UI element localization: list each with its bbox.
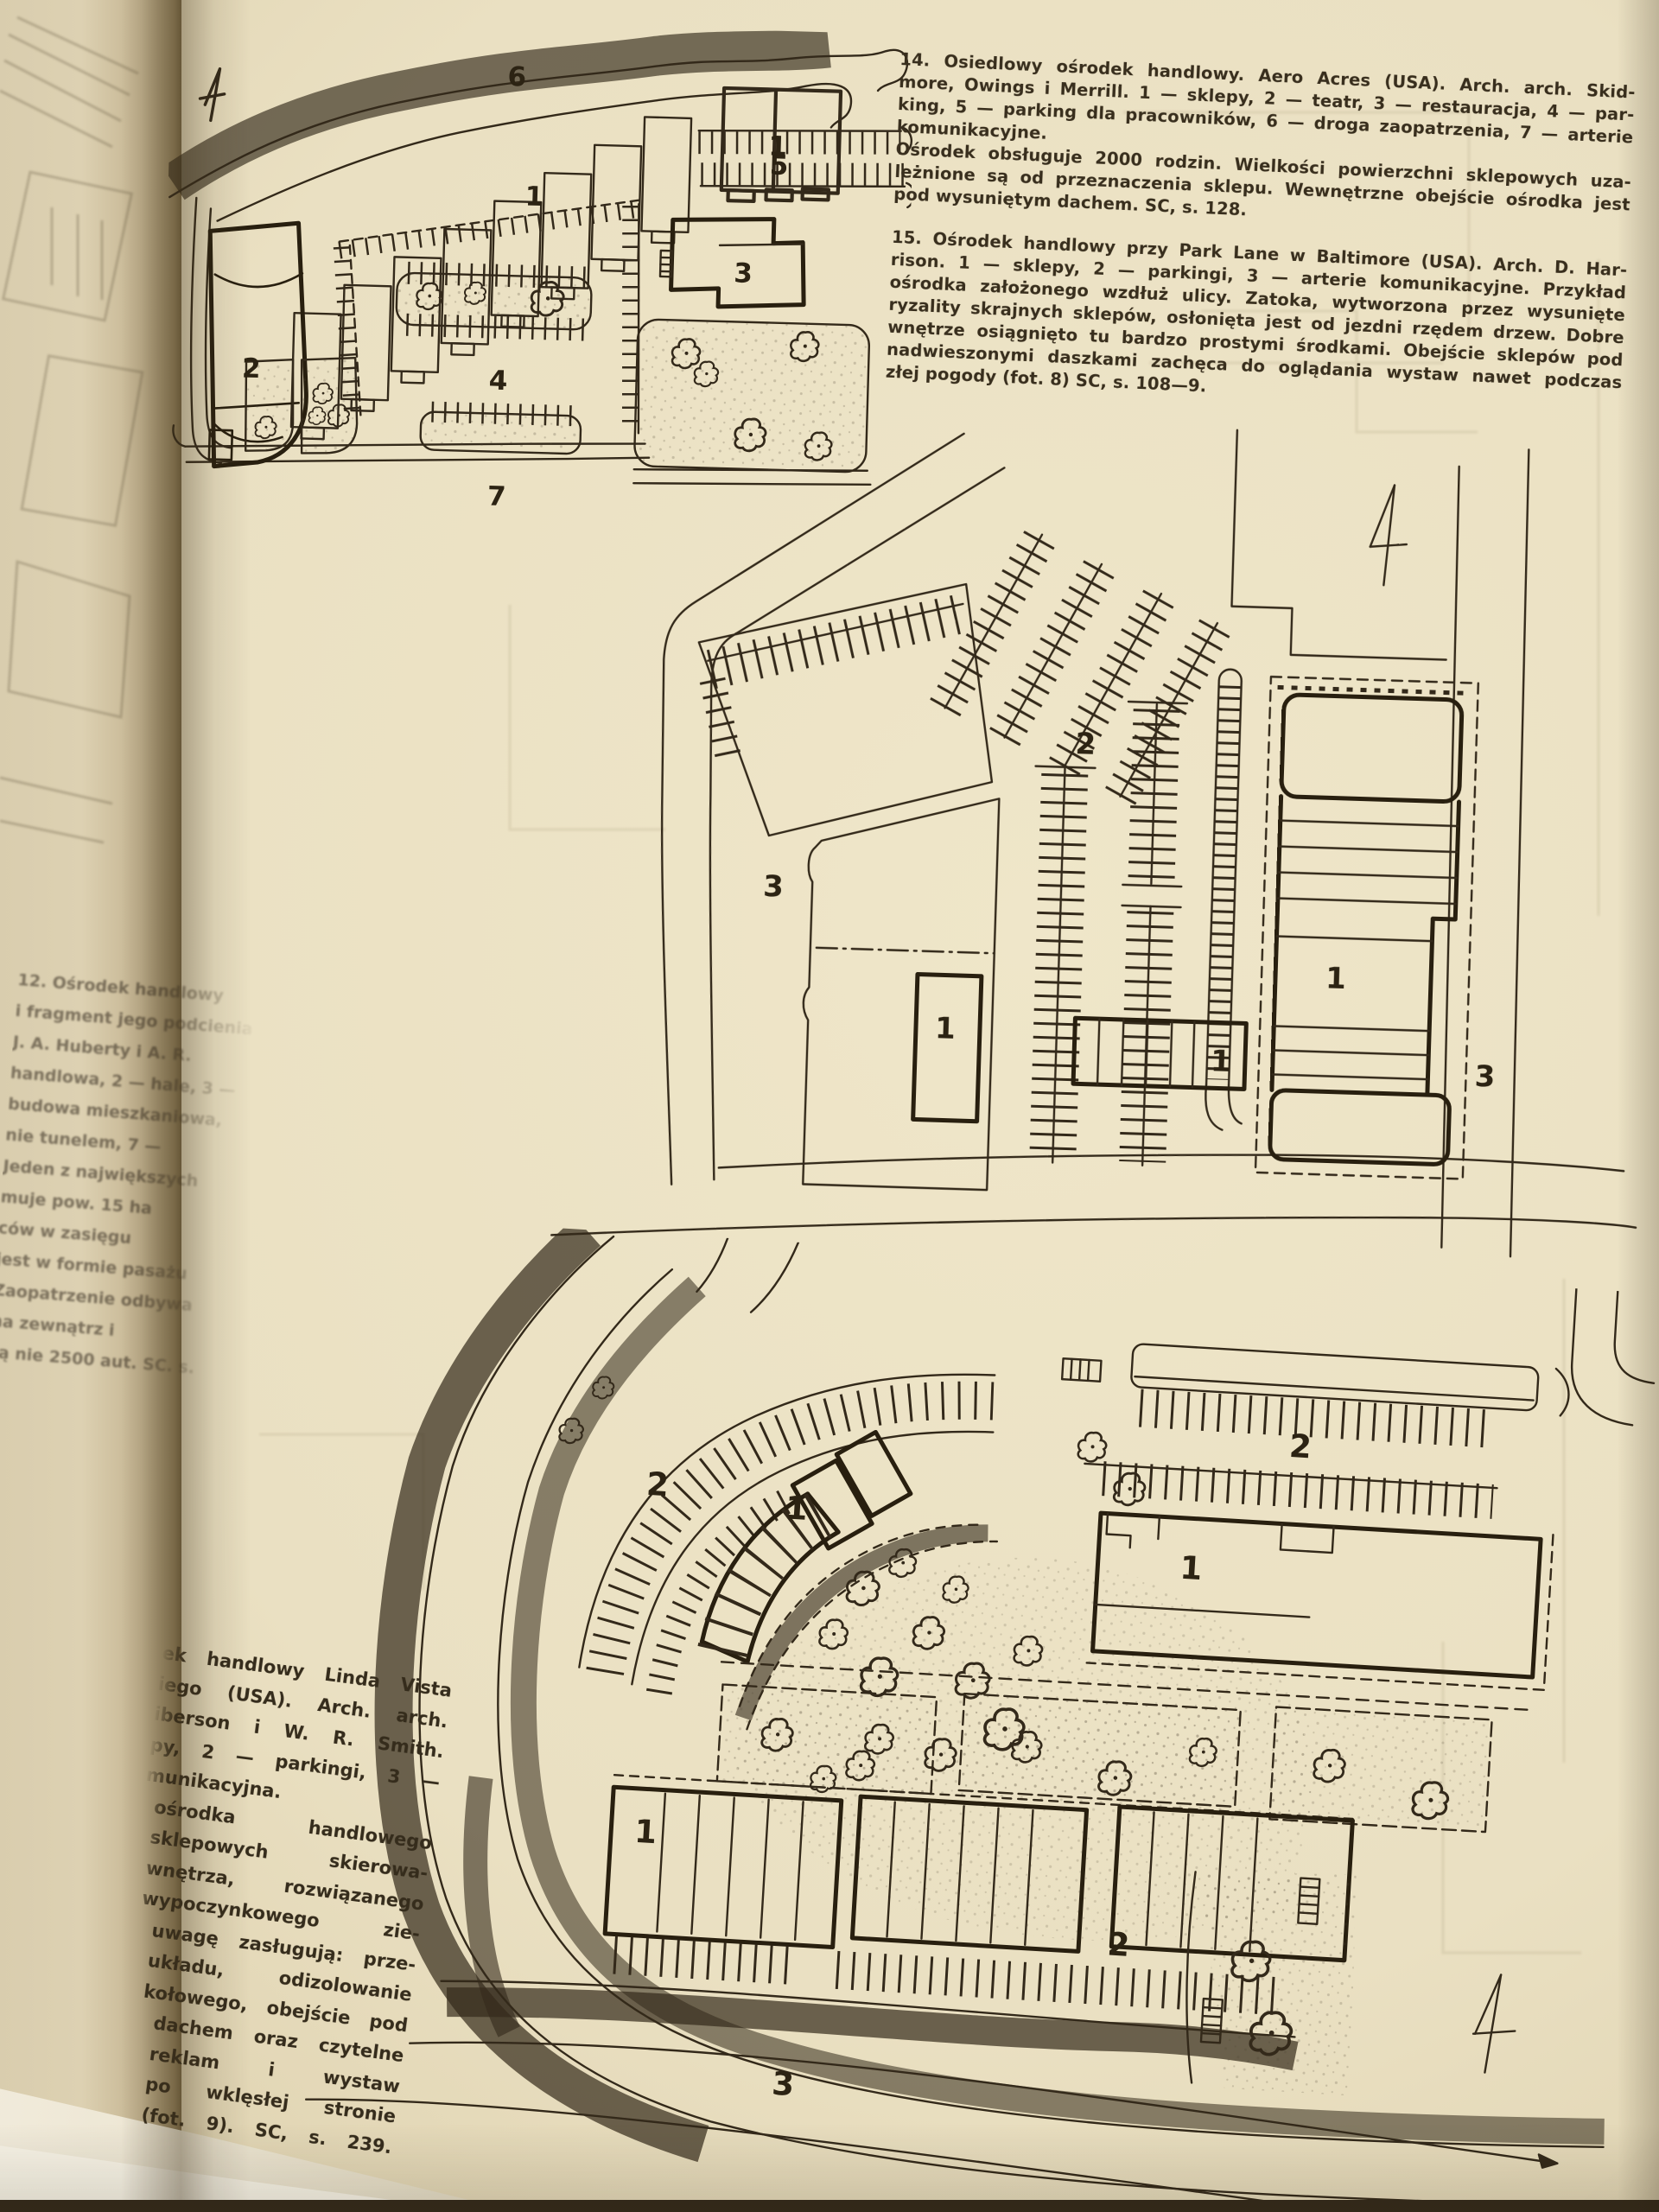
label-shops-arc: 1: [785, 1489, 809, 1527]
fig15-left-parcel: [798, 792, 999, 1190]
fig12-caption-partial: 12. Ośrodek handlowy i fragment jego pod…: [0, 964, 277, 1388]
fig13-right-wedge: [1180, 1865, 1363, 2095]
label-road-top: 6: [507, 61, 527, 93]
fig13-right-parking: [1084, 1341, 1570, 1506]
captions-column: 14. Osiedlowy ośrodek handlowy. Aero Acr…: [884, 48, 1636, 437]
label-parking-staff: 5: [769, 149, 789, 181]
label-road-bottom: 3: [771, 2065, 795, 2103]
label-building-right: 1: [1179, 1549, 1203, 1587]
fig13-plan: 2 1 1 2 1 2 3: [298, 1216, 1659, 2212]
label-road-left: 3: [763, 869, 785, 905]
fig15-roads: [551, 410, 1659, 1269]
crosswalk-mark: [1062, 1358, 1101, 1382]
label-road-bottom: 7: [486, 480, 506, 512]
terrain-stipple: [174, 29, 829, 201]
label-parking-bottom: 2: [1106, 1925, 1130, 1963]
fig15-caption: 15. Ośrodek handlowy przy Park Lane w Ba…: [885, 226, 1627, 416]
label-parking-arc: 2: [645, 1465, 670, 1503]
label-shop-striped: 1: [1210, 1044, 1231, 1079]
fig15-plan: 2 3 3 1 1 1: [495, 406, 1659, 1299]
book-photo: 6 1 1 2 3 4 5 7 14. Osiedlowy ośrodek ha…: [0, 0, 1659, 2212]
label-shops-main: 1: [1325, 961, 1347, 996]
label-theater: 2: [242, 353, 262, 385]
fig14-caption: 14. Osiedlowy ośrodek handlowy. Aero Acr…: [893, 48, 1636, 238]
north-arrow-icon: [200, 68, 226, 121]
fig13-plaza: [531, 1375, 1333, 1954]
label-buildings-bottom: 1: [633, 1813, 658, 1851]
photo-edge: [0, 2200, 1659, 2212]
label-parking-center: 4: [488, 365, 508, 397]
label-parking-right: 2: [1288, 1427, 1313, 1465]
fig15-herringbone-parking: [1023, 664, 1255, 1169]
label-parking: 2: [1075, 727, 1096, 762]
north-arrow-icon: [1471, 1974, 1518, 2075]
north-arrow-icon: [1369, 485, 1408, 586]
label-road-right: 3: [1474, 1059, 1496, 1095]
fig14-restaurant: [659, 216, 806, 309]
label-shops-a: 1: [524, 181, 544, 213]
label-restaurant: 3: [734, 257, 753, 289]
label-shop-left: 1: [935, 1011, 957, 1046]
